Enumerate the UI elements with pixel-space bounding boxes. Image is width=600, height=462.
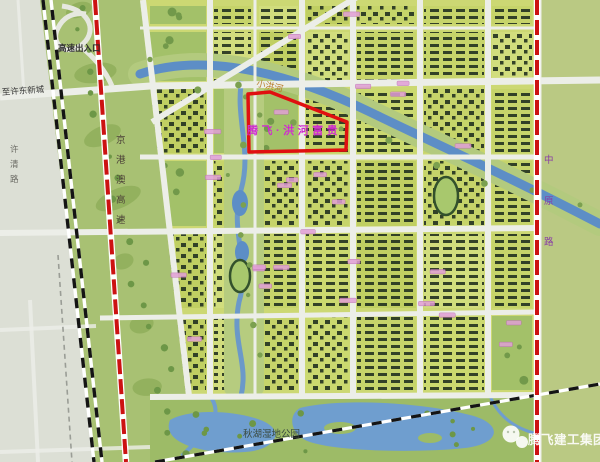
tree: [471, 427, 475, 431]
block-tag: [187, 337, 201, 342]
block-tag: [397, 81, 409, 86]
block-tag: [348, 259, 360, 264]
tree: [433, 162, 440, 169]
tree: [87, 69, 93, 75]
tree: [303, 449, 307, 453]
tree: [235, 82, 242, 89]
tree: [481, 180, 488, 187]
block-tag: [259, 284, 272, 289]
tree: [75, 27, 79, 31]
xuqing-road-label: 许清路: [10, 144, 19, 184]
buildings: [259, 316, 298, 390]
tree: [241, 202, 247, 208]
block-tag: [288, 34, 300, 39]
project-plot-label: 腾飞·洪河富贵: [247, 123, 341, 137]
tree: [226, 173, 230, 177]
block-tag: [171, 273, 187, 278]
block-tag: [430, 269, 445, 274]
block-tag: [204, 129, 221, 134]
buildings: [357, 6, 416, 24]
buildings: [424, 32, 484, 81]
buildings: [357, 234, 416, 308]
tree: [450, 431, 456, 437]
tree: [454, 442, 459, 447]
buildings: [357, 316, 416, 390]
tree: [161, 344, 168, 351]
buildings: [424, 316, 484, 390]
block-tag: [273, 265, 289, 270]
tree: [385, 137, 392, 144]
map-canvas: 高速出入口 至许东新城 许清路 京港澳高速 小洪河 腾飞·洪河富贵 中原路 秋湖…: [0, 0, 600, 462]
buildings: [306, 32, 349, 81]
tree: [143, 260, 149, 266]
tree: [128, 281, 135, 288]
block-tag: [339, 298, 356, 303]
tree: [240, 142, 247, 149]
buildings: [306, 161, 349, 226]
buildings: [357, 32, 416, 81]
buildings: [357, 161, 416, 226]
tree: [194, 86, 201, 93]
block-tag: [314, 172, 327, 177]
block-tag: [277, 183, 291, 188]
tree: [257, 112, 262, 117]
tree: [80, 5, 86, 11]
tree: [238, 232, 244, 238]
wechat-icon-bubble: [516, 436, 528, 448]
buildings: [492, 6, 532, 24]
block-tag: [274, 110, 288, 115]
tree: [147, 57, 152, 62]
block-tag: [455, 144, 471, 149]
buildings: [492, 234, 532, 308]
block-tag: [205, 175, 221, 180]
pond: [232, 190, 248, 216]
tree: [249, 420, 256, 427]
tree: [204, 427, 210, 433]
block-tag: [301, 229, 316, 234]
block-tag: [343, 12, 360, 17]
tree: [257, 352, 262, 357]
master-plan-map: 高速出入口 至许东新城 许清路 京港澳高速 小洪河 腾飞·洪河富贵 中原路 秋湖…: [0, 0, 600, 462]
tree: [126, 238, 133, 245]
buildings: [259, 234, 298, 308]
tree: [164, 408, 170, 414]
tree: [297, 410, 303, 416]
tree: [450, 419, 455, 424]
watermark-brand-text: 腾飞建工集团: [527, 432, 600, 447]
block-tag: [210, 155, 221, 160]
block-tag: [506, 321, 521, 326]
tree: [89, 111, 96, 118]
tree: [154, 387, 161, 394]
buildings: [259, 6, 298, 24]
block-tag: [439, 313, 455, 318]
buildings: [214, 6, 251, 24]
buildings: [424, 6, 484, 24]
buildings: [306, 316, 349, 390]
tree: [141, 302, 147, 308]
block-tag: [253, 265, 266, 270]
buildings: [259, 161, 298, 226]
tree: [146, 324, 152, 330]
tree: [237, 434, 242, 439]
block-tag: [390, 92, 405, 97]
tree: [88, 90, 94, 96]
tree: [247, 262, 253, 268]
tree: [246, 293, 250, 297]
block-tag: [332, 200, 345, 205]
wetland-park-label: 秋湖湿地公园: [243, 428, 300, 440]
tree: [250, 322, 256, 328]
buildings: [492, 32, 532, 81]
buildings: [306, 234, 349, 308]
block-tag: [286, 178, 298, 183]
buildings: [492, 89, 532, 153]
highway-exit-label: 高速出入口: [58, 43, 101, 53]
tree: [168, 366, 174, 372]
tree: [164, 430, 170, 436]
tree: [578, 202, 583, 207]
block-tag: [355, 84, 370, 89]
tree: [193, 411, 200, 418]
block-tag: [418, 301, 434, 306]
block-tag: [499, 342, 512, 347]
